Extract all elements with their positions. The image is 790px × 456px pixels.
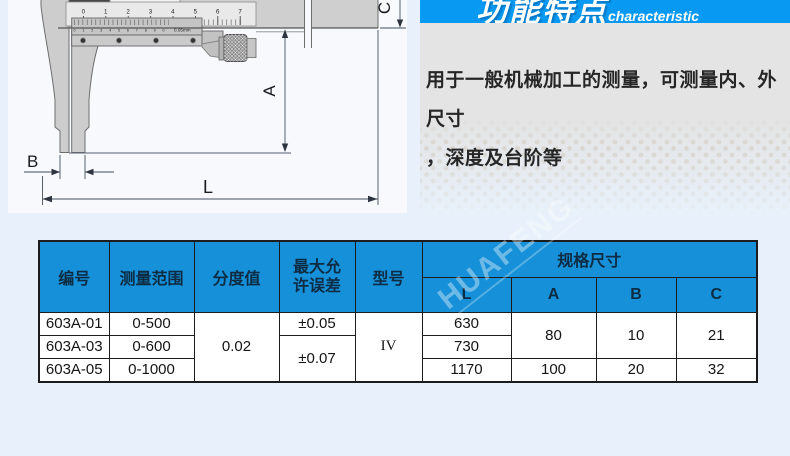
cell-code: 603A-05: [39, 358, 109, 382]
cell-range: 0-500: [109, 312, 194, 335]
col-header-C: C: [676, 277, 757, 312]
fixed-jaw: [41, 0, 69, 153]
col-header-L: L: [422, 277, 511, 312]
rivet: [80, 38, 85, 43]
cell-code: 603A-03: [39, 335, 109, 358]
vernier-numbers: 01234567890: [74, 29, 172, 33]
arrowhead: [43, 196, 53, 202]
arrowhead: [282, 144, 288, 153]
scale-number: 7: [238, 9, 242, 16]
cell-error: ±0.05: [279, 312, 355, 335]
vernier-ticks: [74, 20, 169, 26]
slider-body: [72, 35, 202, 46]
feature-text: 用于一般机械加工的测量，可测量内、外尺寸 ，深度及台阶等: [426, 61, 788, 178]
scale-number: 5: [194, 9, 198, 16]
section-banner: 功能特点characteristic: [420, 0, 790, 23]
cell-A: 100: [511, 358, 596, 382]
cell-range: 0-600: [109, 335, 194, 358]
col-header-spec-group: 规格尺寸: [422, 241, 757, 277]
cell-range: 0-1000: [109, 358, 194, 382]
feature-box: 用于一般机械加工的测量，可测量内、外尺寸 ，深度及台阶等: [420, 23, 790, 216]
col-header-max-error-text: 最大允许误差: [289, 258, 345, 296]
col-header-range: 测量范围: [109, 241, 194, 312]
scale-number: 6: [216, 9, 220, 16]
table-row: 603A-01 0-500 0.02 ±0.05 IV 630 80 10 21: [39, 312, 757, 335]
feature-text-line1: 用于一般机械加工的测量，可测量内、外尺寸: [426, 61, 788, 139]
dim-label-A: A: [260, 85, 279, 97]
wheel-left-cap: [219, 37, 224, 60]
spec-table: 编号 测量范围 分度值 最大允许误差 型号 规格尺寸 L A B C 603A-…: [38, 240, 758, 383]
arrowhead: [368, 196, 378, 202]
scale-number: 4: [171, 9, 175, 16]
dim-label-B: B: [27, 152, 38, 171]
col-header-code: 编号: [39, 241, 109, 312]
cell-L: 730: [422, 335, 511, 358]
cell-graduation: 0.02: [194, 312, 279, 382]
feature-text-line2: ，深度及台阶等: [426, 139, 788, 178]
cell-C: 32: [676, 358, 757, 382]
cell-error: ±0.07: [279, 335, 355, 382]
cell-A: 80: [511, 312, 596, 358]
dim-label-L: L: [203, 177, 213, 197]
arrowhead: [52, 169, 61, 175]
col-header-A: A: [511, 277, 596, 312]
scale-number: 1: [104, 9, 108, 16]
cell-code: 603A-01: [39, 312, 109, 335]
arrowhead: [282, 30, 288, 39]
col-header-max-error: 最大允许误差: [279, 241, 355, 312]
col-header-graduation: 分度值: [194, 241, 279, 312]
cell-L: 630: [422, 312, 511, 335]
cell-L: 1170: [422, 358, 511, 382]
spec-table-section: 编号 测量范围 分度值 最大允许误差 型号 规格尺寸 L A B C 603A-…: [38, 240, 757, 383]
scale-number: 3: [149, 9, 153, 16]
rivet: [153, 38, 158, 43]
thumb-wheel-knurl: [224, 35, 247, 62]
cell-B: 20: [596, 358, 676, 382]
scale-number: 2: [126, 9, 130, 16]
rivet: [116, 38, 121, 43]
arrowhead: [397, 20, 403, 28]
col-header-B: B: [596, 277, 676, 312]
dim-label-C: C: [375, 2, 394, 14]
diagram-panel: 0 1 2 3 4 5 6 7 01234567890 0.05mm: [8, 0, 407, 213]
cell-model: IV: [355, 312, 422, 382]
sliding-jaw: [72, 30, 103, 153]
scale-number: 0: [82, 9, 86, 16]
section-title: 功能特点: [476, 0, 608, 23]
wheel-right-cap: [247, 39, 256, 58]
beam-break-gap: [305, 0, 312, 48]
section-title-row: 功能特点characteristic: [476, 0, 790, 23]
rivet: [190, 38, 195, 43]
cell-B: 10: [596, 312, 676, 358]
section-title-en: characteristic: [608, 8, 699, 23]
caliper-diagram: 0 1 2 3 4 5 6 7 01234567890 0.05mm: [8, 0, 407, 213]
col-header-model: 型号: [355, 241, 422, 312]
product-spec-page: { "diagram": { "scale_numbers": ["0","1"…: [0, 0, 790, 456]
feature-section: 功能特点characteristic 用于一般机械加工的测量，可测量内、外尺寸 …: [420, 0, 790, 216]
cell-C: 21: [676, 312, 757, 358]
arrowhead: [85, 169, 94, 175]
